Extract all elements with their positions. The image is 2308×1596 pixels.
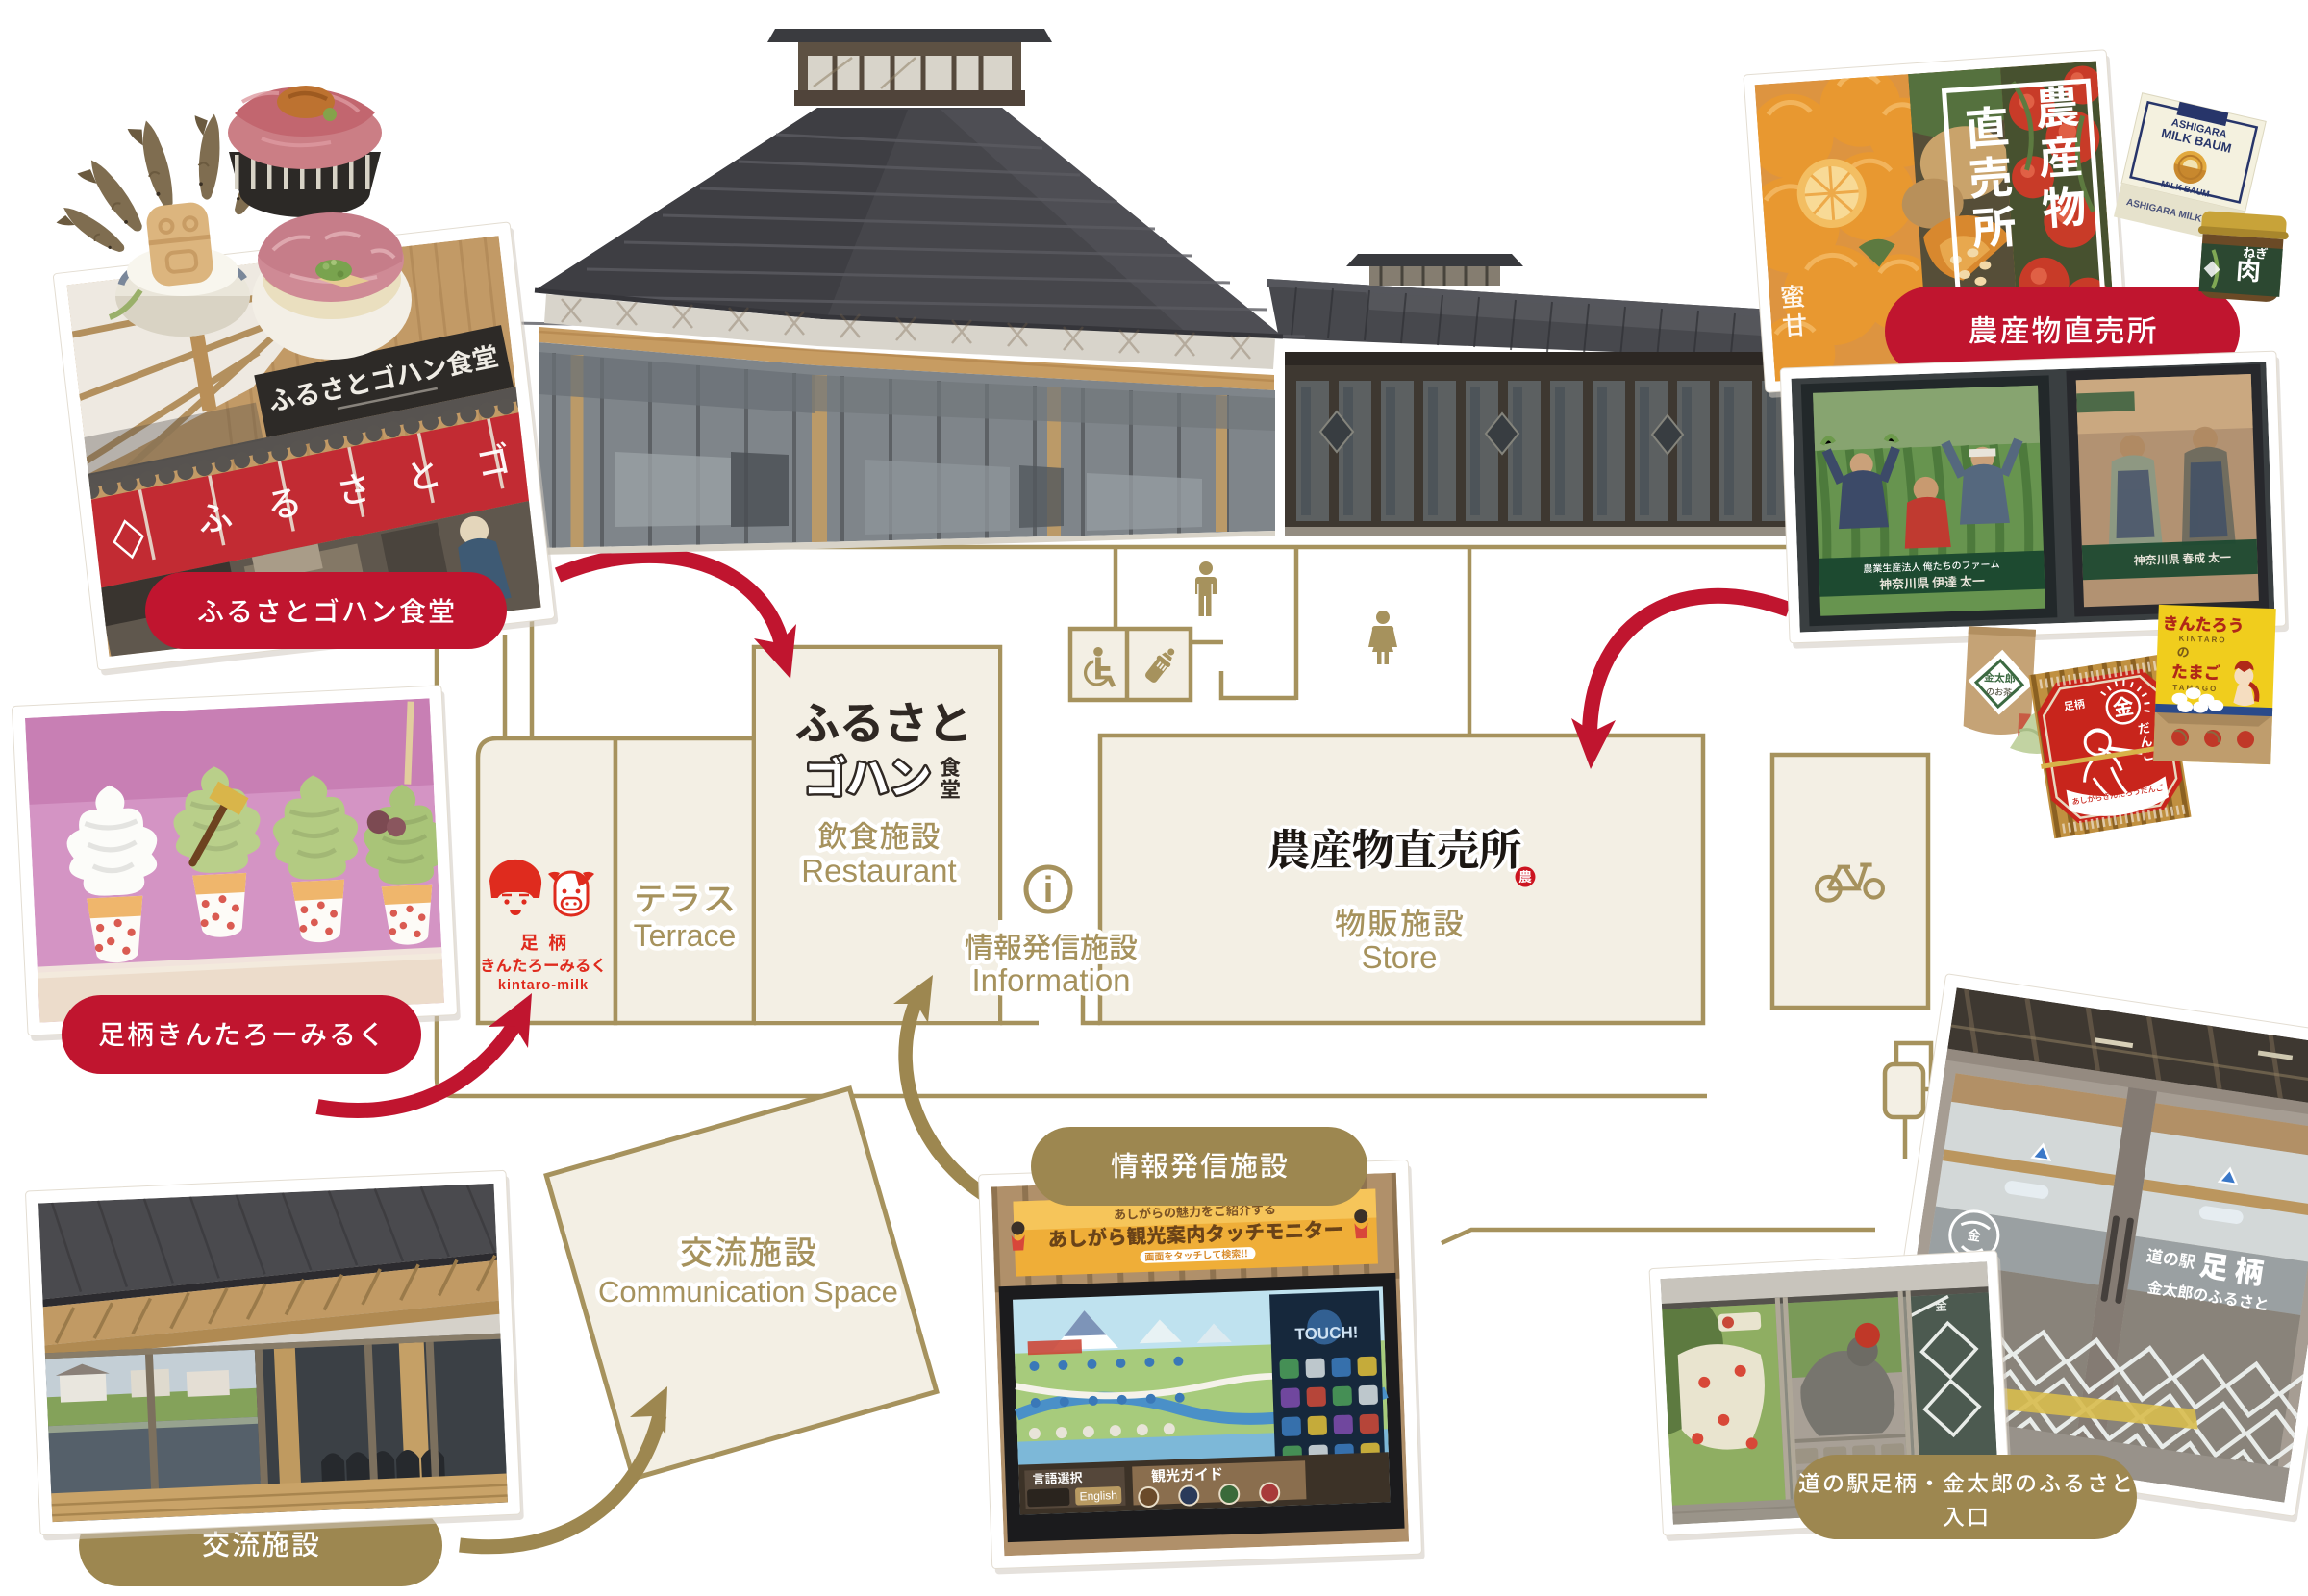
svg-text:kintaro-milk: kintaro-milk	[498, 978, 589, 993]
svg-text:TOUCH!: TOUCH!	[1294, 1323, 1358, 1343]
svg-text:Store: Store	[1362, 939, 1438, 975]
svg-text:KINTARO: KINTARO	[2179, 635, 2227, 645]
svg-text:Restaurant: Restaurant	[801, 853, 956, 888]
svg-text:Information: Information	[971, 962, 1130, 998]
svg-text:Communication Space: Communication Space	[598, 1275, 898, 1309]
svg-text:English: English	[1079, 1488, 1117, 1503]
svg-text:Terrace: Terrace	[634, 918, 737, 953]
svg-text:i: i	[1043, 870, 1054, 910]
